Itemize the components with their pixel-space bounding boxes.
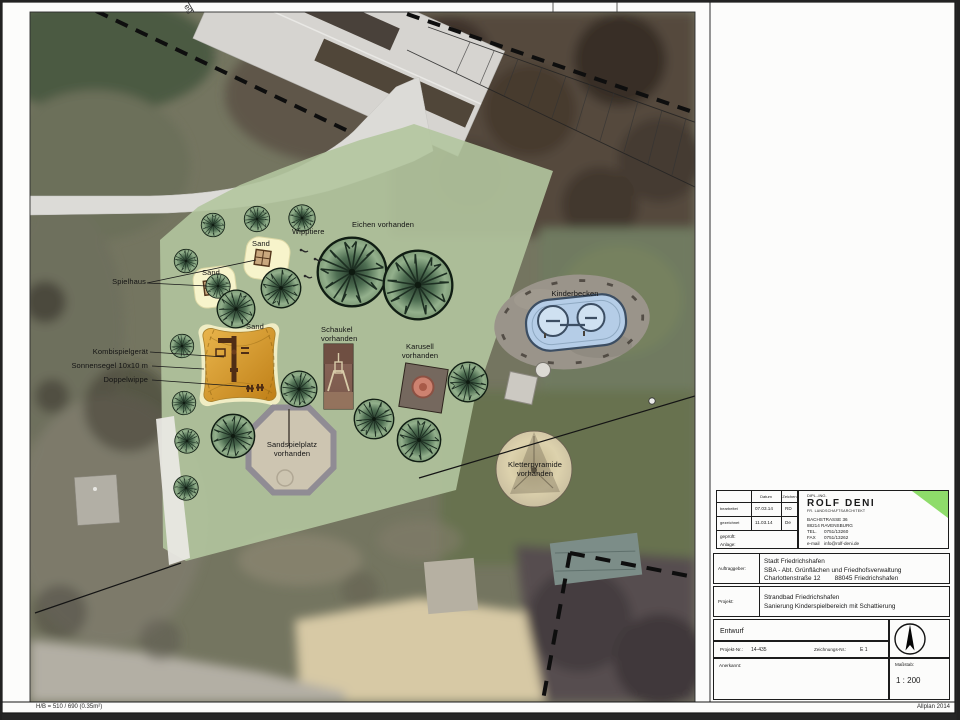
plan-sheet: Spielhaus Kombispielgerät Sonnensegel 10…: [0, 0, 960, 720]
north-arrow-icon: [890, 620, 949, 657]
client-label: Auftraggeber:: [718, 567, 746, 572]
number-row: Projekt-Nr.: 14-435 Zeichnungs-Nr.: E 1: [713, 641, 889, 658]
architect-fax: FAX0751/13262: [807, 536, 848, 541]
col-zeichen: Zeichen: [780, 495, 799, 499]
revision-table: Datum Zeichen bearbeitet 07.03.14 RD gez…: [716, 490, 798, 549]
phase-box: Entwurf: [713, 619, 889, 641]
project-label: Projekt:: [718, 600, 734, 605]
phase-label: Entwurf: [720, 628, 744, 635]
scale-label: Maßstab:: [895, 663, 914, 668]
approved-label: Anerkannt:: [719, 664, 741, 669]
meta-row-label: gezeichnet: [720, 521, 739, 525]
client-box: Auftraggeber: Stadt Friedrichshafen SBA …: [713, 553, 950, 584]
label-kombispielgeraet: Kombispielgerät: [52, 348, 148, 357]
north-box: [889, 619, 950, 658]
project-text: Strandbad Friedrichshafen Sanierung Kind…: [764, 594, 895, 611]
architect-box: DIPL.-ING. ROLF DENI FR. LANDSCHAFTSARCH…: [798, 490, 949, 549]
meta-row-datum: 07.03.14: [755, 507, 773, 512]
footer-software: Allplan 2014: [862, 704, 950, 710]
label-doppelwippe: Doppelwippe: [52, 376, 148, 385]
label-sand-3: Sand: [246, 323, 264, 332]
architect-address2: 88214 RAVENSBURG: [807, 524, 853, 529]
label-sandspielplatz: Sandspielplatz vorhanden: [260, 441, 324, 458]
scale-box: Maßstab: 1 : 200: [889, 658, 950, 700]
col-datum: Datum: [751, 495, 781, 499]
meta-row-datum: 11.03.14: [755, 521, 773, 526]
oak-tree: [318, 238, 387, 307]
swing-area: [324, 344, 353, 409]
label-schaukel: Schaukel vorhanden: [321, 326, 363, 343]
project-box: Projekt: Strandbad Friedrichshafen Sanie…: [713, 586, 950, 617]
project-nr-label: Projekt-Nr.:: [720, 648, 743, 653]
label-eichen: Eichen vorhanden: [352, 221, 414, 230]
title-block: Datum Zeichen bearbeitet 07.03.14 RD gez…: [713, 488, 951, 700]
architect-email: e-mailinfo@rolf-deni.de: [807, 542, 859, 547]
anlage-label: Anlage:: [720, 543, 736, 548]
approved-box: Anerkannt:: [713, 658, 889, 700]
drawing-nr: E 1: [860, 648, 868, 653]
corner-marker: [912, 491, 948, 518]
label-sand-2: Sand: [202, 269, 220, 278]
meta-row-zeichen: De: [785, 521, 791, 526]
label-kinderbecken: Kinderbecken: [544, 290, 606, 299]
tree: [211, 414, 254, 457]
client-text: Stadt Friedrichshafen SBA - Abt. Grünflä…: [764, 558, 901, 584]
label-wipptiere: Wipptiere: [292, 228, 325, 237]
label-sonnensegel: Sonnensegel 10x10 m: [38, 362, 148, 371]
label-kletterpyramide: Kletterpyramide vorhanden: [498, 461, 572, 478]
label-karussell: Karusell vorhanden: [396, 343, 444, 360]
architect-name: ROLF DENI: [807, 498, 875, 509]
carousel-area: [399, 363, 448, 413]
label-sand-1: Sand: [252, 240, 270, 249]
sonnensegel-area: [198, 323, 280, 406]
architect-tel: TEL.0751/13260: [807, 530, 848, 535]
label-spielhaus: Spielhaus: [60, 278, 146, 287]
footer-format: H/B = 510 / 690 (0.35m²): [36, 704, 102, 710]
scale-value: 1 : 200: [896, 677, 920, 685]
project-nr: 14-435: [751, 648, 767, 653]
drawing-nr-label: Zeichnungs-Nr.:: [814, 648, 846, 653]
architect-address1: BACHSTRASSE 36: [807, 518, 848, 523]
geprueft-label: geprüft:: [720, 535, 736, 540]
meta-row-label: bearbeitet: [720, 507, 738, 511]
meta-row-zeichen: RD: [785, 507, 792, 512]
architect-subtitle: FR. LANDSCHAFTSARCHITEKT: [807, 510, 865, 514]
